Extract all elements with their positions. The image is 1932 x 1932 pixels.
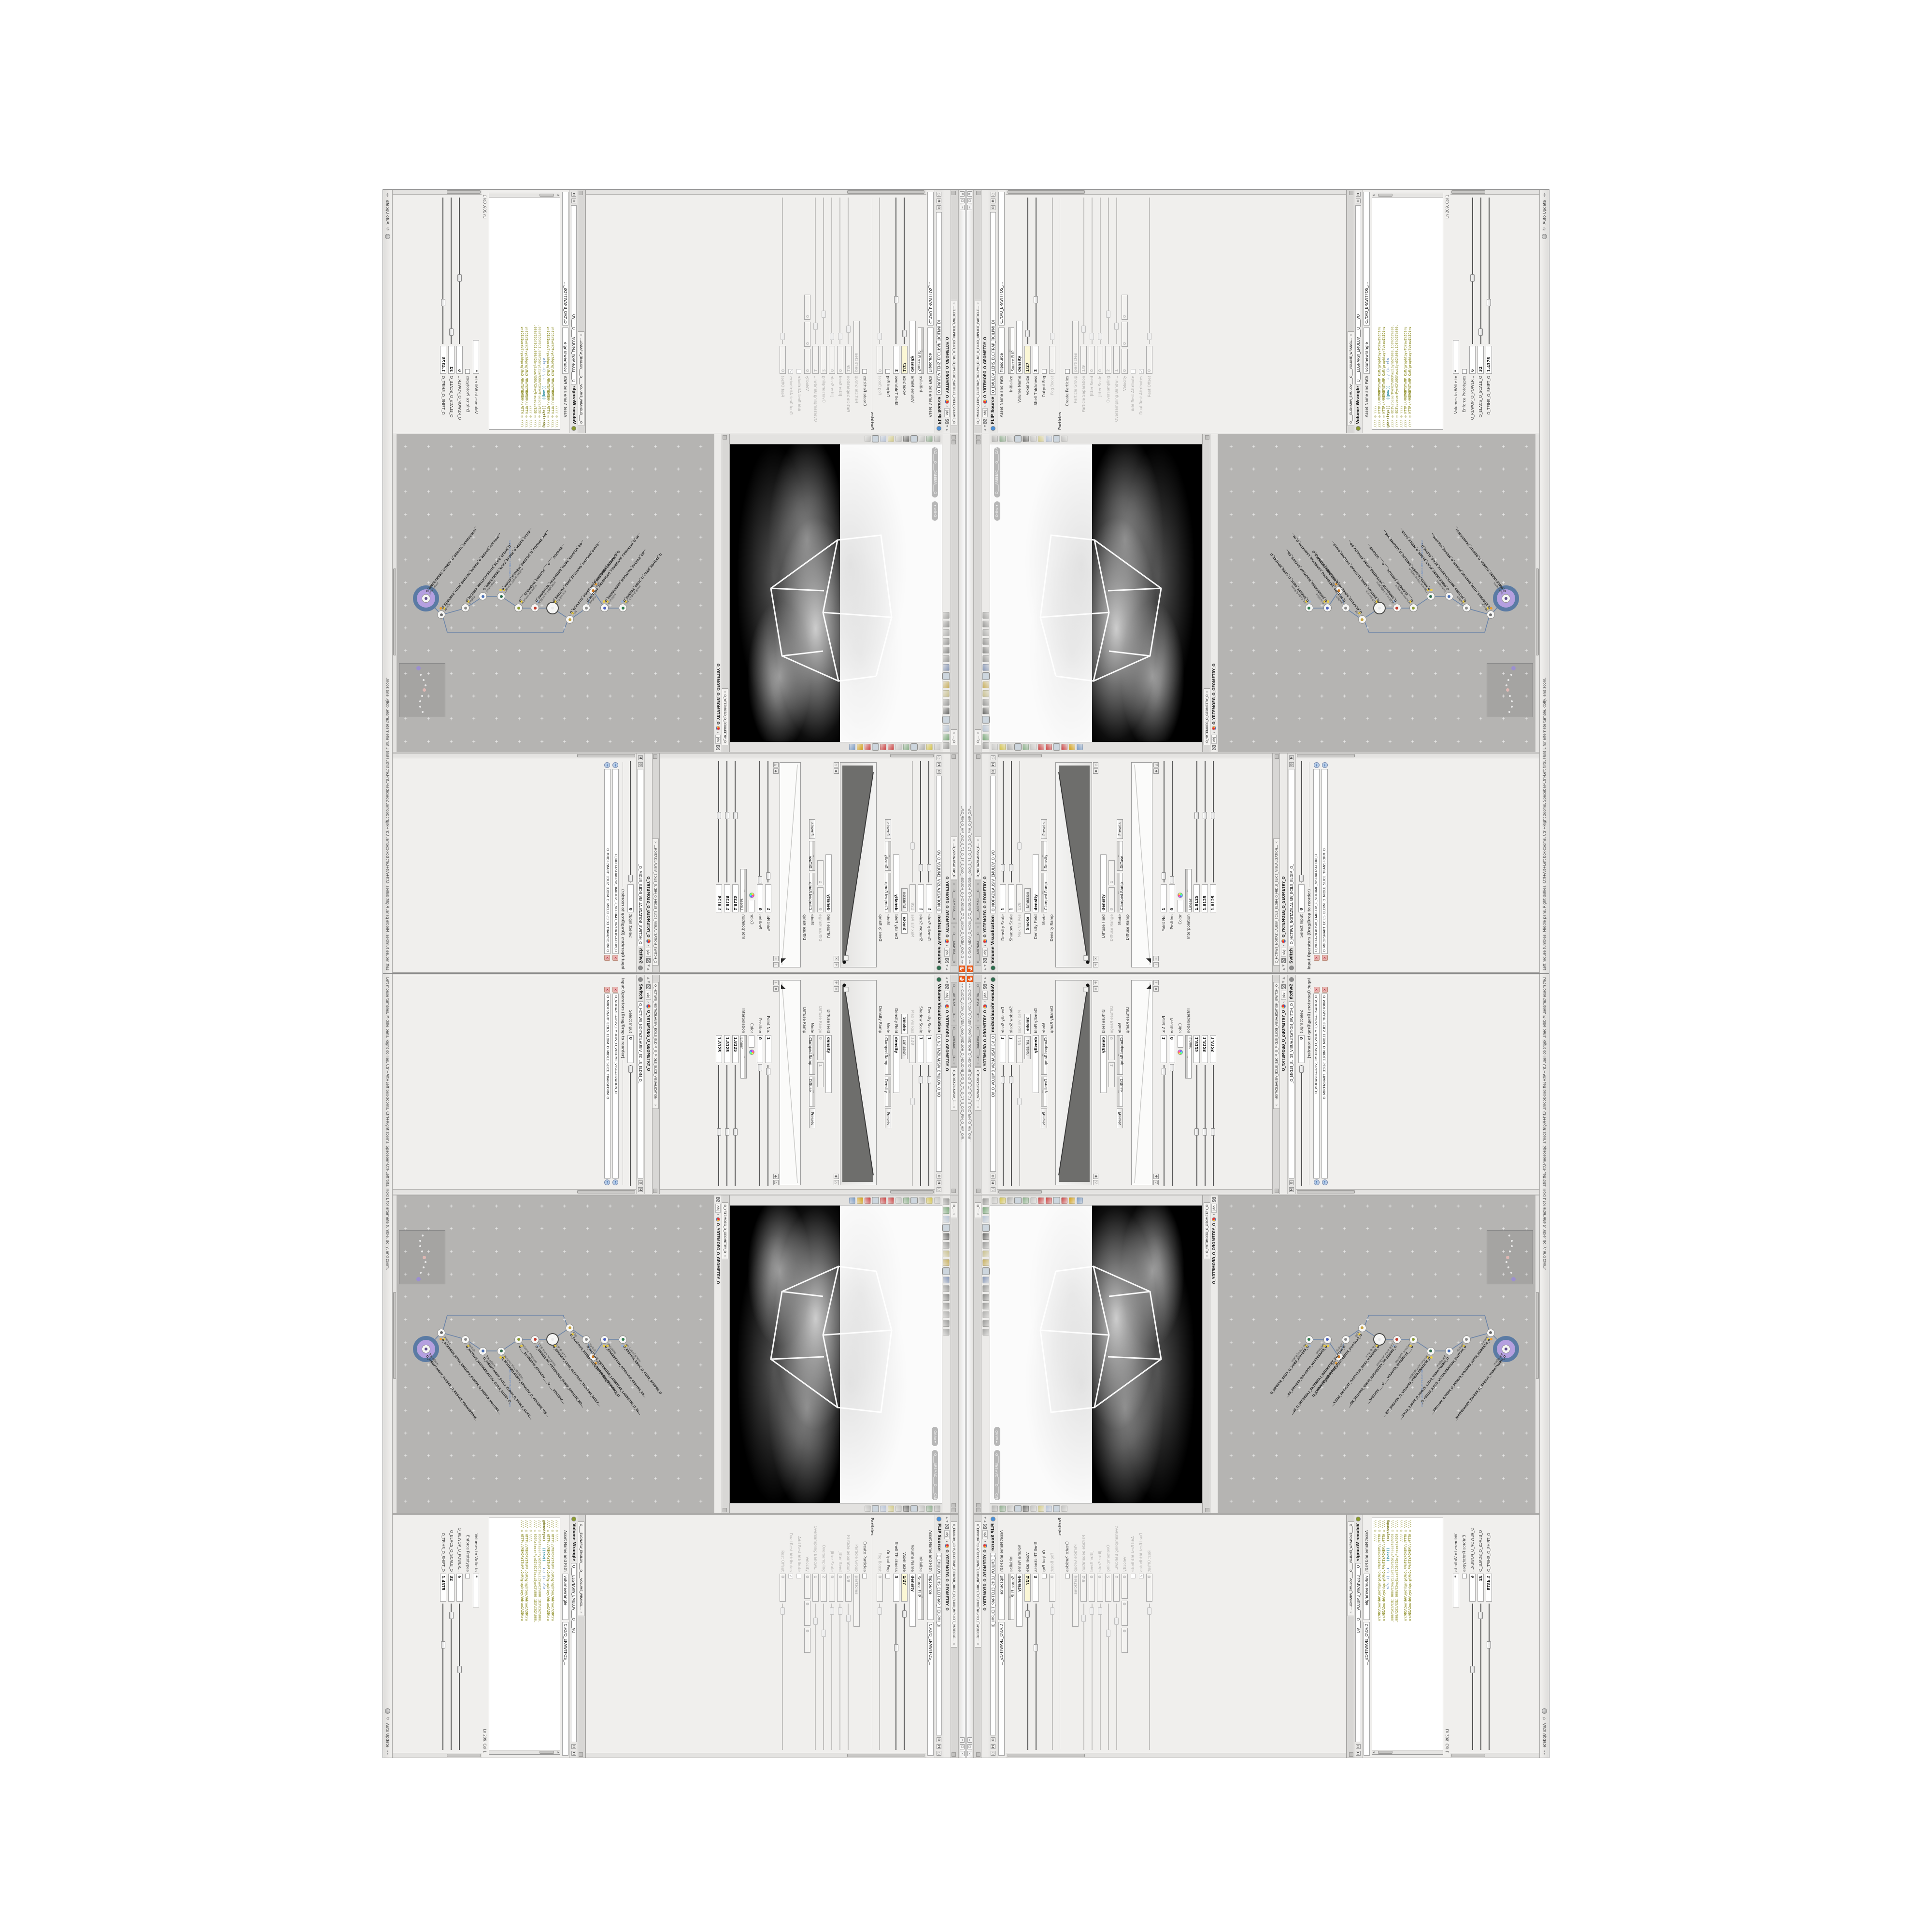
asset-name-field[interactable]: volumewrangle (1364, 1574, 1370, 1620)
value-field[interactable]: 1.4375 (1486, 1574, 1492, 1602)
node-transform[interactable] (1502, 1345, 1510, 1353)
dropdown-channel[interactable]: Diffuse (1117, 1077, 1123, 1107)
slider-handle[interactable] (1025, 330, 1030, 337)
slider-handle[interactable] (628, 1065, 633, 1073)
color-swatch[interactable] (749, 900, 755, 912)
slider-handle[interactable] (717, 1128, 721, 1136)
titlebar-scroll-arrows[interactable]: ◀ ▶ (968, 960, 971, 964)
node-name-field[interactable]: O_EMULOV_LEHS_ELCITRAP_TICILPMI_DI (936, 212, 942, 395)
ramp-marker-icon[interactable]: △ (834, 762, 839, 767)
toolbar-icon-4[interactable] (1023, 436, 1029, 442)
pane-tab[interactable]: O____ELGNARW_EMULOV____O____VOLUME_WRANG… (578, 331, 584, 426)
value-field[interactable]: 1 (1113, 1574, 1120, 1602)
pane-menu-icon[interactable] (1205, 435, 1209, 440)
value-field[interactable]: 1.8125 (716, 1035, 722, 1063)
ramp-marker-icon[interactable]: ◆ (834, 768, 839, 774)
breadcrumb-obj[interactable]: obj (1211, 1204, 1217, 1213)
slider-handle[interactable] (878, 1607, 882, 1615)
pane-tab[interactable]: O____ARTNAM____O...✕ (975, 923, 981, 966)
search-icon[interactable]: ◌ (991, 755, 995, 760)
toolbar-icon-13[interactable] (943, 1311, 950, 1318)
slider[interactable] (838, 1604, 843, 1750)
reorder-input-icon[interactable]: ← (1322, 1179, 1328, 1185)
gear-icon[interactable]: ⚙ (638, 1180, 643, 1185)
asset-path-field[interactable]: C:/O/O_ERAWTFOS_... (998, 192, 1005, 326)
slider-handle[interactable] (1090, 333, 1094, 340)
toolbar-icon-5[interactable] (982, 699, 989, 706)
value-field[interactable]: 0 (1169, 1035, 1175, 1063)
titlebar-scroll-arrows[interactable]: ◀ ▶ (961, 983, 964, 988)
reorder-input-icon[interactable]: ← (613, 762, 619, 768)
gear-icon[interactable]: ⚙ (991, 1174, 995, 1179)
slider[interactable] (757, 1065, 763, 1186)
value-field[interactable]: 0 (837, 346, 843, 374)
viewport-tab[interactable]: O_...✕ (975, 729, 981, 745)
value-field[interactable]: 1.8125 (1202, 884, 1208, 912)
checkbox-checked[interactable]: ✔ (1139, 369, 1144, 374)
slider-handle[interactable] (1098, 1607, 1102, 1615)
nav-up-icon[interactable]: ▲ (983, 977, 987, 980)
toolbar-icon-15[interactable] (943, 1329, 950, 1335)
slider[interactable] (1478, 1604, 1483, 1750)
node-name-field[interactable]: O____ELGNARW_EMULOV____O____VO (571, 1563, 577, 1742)
nav-up-icon[interactable]: ▲ (945, 1517, 949, 1519)
pane-menu-icon[interactable] (1275, 1189, 1279, 1193)
value-field[interactable]: 3 (893, 346, 899, 374)
toolbar-icon-0[interactable] (992, 744, 998, 751)
search-icon[interactable]: ◌ (937, 1187, 941, 1192)
value-field[interactable]: 0 (1122, 349, 1128, 374)
node-switch[interactable] (462, 1335, 470, 1344)
slider[interactable] (1299, 761, 1304, 882)
toolbar-icon-15[interactable] (982, 1329, 989, 1335)
toolbar-icon-7[interactable] (880, 1197, 886, 1204)
node-an-cubesphere[interactable] (619, 1335, 627, 1344)
viewport-render[interactable]: Ortho ▾ O____AREMAC____O____CAMERA____O … (730, 1206, 942, 1503)
viewport-tab[interactable]: O_...✕ (975, 1202, 981, 1218)
code-scrollbar[interactable]: ▲ (489, 1750, 560, 1754)
color-wheel-icon[interactable] (749, 893, 754, 898)
asset-path-field[interactable]: C:/O/O_ERAWTFOS_... (927, 1622, 934, 1756)
subtab-smoke[interactable]: Smoke (901, 913, 908, 934)
value-field[interactable]: 1/9 (1080, 1574, 1087, 1602)
update-mode-arrows[interactable]: ◀ ▶ (1543, 193, 1546, 197)
slider-handle[interactable] (1001, 1076, 1005, 1083)
value-field[interactable]: 1 (812, 346, 819, 374)
node-name-field[interactable]: O_EMULOV_LEHS_ELCITRAP_TICILPMI_DI (990, 212, 996, 395)
update-mode-arrows[interactable]: ◀ ▶ (386, 193, 389, 197)
pane-tab[interactable]: O____AREMAC____O...✕ (951, 1025, 957, 1067)
toolbar-icon-6[interactable] (888, 1197, 894, 1204)
breadcrumb-path[interactable]: O_YRTEMOEG_O_GEOMETRY_O (1212, 1223, 1216, 1284)
vex-code-editor[interactable]: //// ◎ \\\\//// ◎ HTTP://MEMORYST◎MP.C◎M… (489, 193, 560, 430)
value-field[interactable]: density (1100, 854, 1107, 912)
breadcrumb-path[interactable]: O_YRTEMOEG_O_GEOMETRY_O (983, 1549, 987, 1611)
subtab-smoke[interactable]: Smoke (901, 1014, 908, 1034)
slider-handle[interactable] (1170, 876, 1174, 883)
slider[interactable] (1478, 198, 1483, 344)
dropdown-channel[interactable]: Density (885, 841, 891, 871)
presets-button[interactable]: Presets (885, 819, 891, 839)
breadcrumb-obj[interactable]: obj (982, 948, 988, 957)
slider[interactable] (1114, 1604, 1119, 1750)
ramp-add-icon[interactable]: ＋ (1153, 980, 1159, 985)
toolbar-icon-11[interactable] (1077, 1197, 1083, 1204)
breadcrumb-obj[interactable]: obj (715, 735, 721, 744)
slider[interactable] (1486, 198, 1492, 344)
ramp-marker-icon[interactable]: △ (1093, 1180, 1098, 1185)
close-button[interactable]: ✕ (960, 191, 965, 197)
pane-scrollbar[interactable] (1450, 190, 1539, 195)
pane-scrollbar[interactable] (997, 1189, 1272, 1194)
value-field[interactable]: 1.8125 (732, 1035, 739, 1063)
dropdown[interactable]: Source FLIP (1008, 327, 1014, 374)
node-transform[interactable] (479, 1347, 487, 1355)
breadcrumb-path[interactable]: O_YRTEMOEG_O_GEOMETRY_O (945, 876, 949, 938)
remove-input-icon[interactable]: ✕ (613, 955, 619, 961)
slider-handle[interactable] (1114, 1618, 1119, 1625)
breadcrumb-obj[interactable]: obj (944, 948, 950, 957)
pane-pin-icon[interactable] (976, 435, 980, 440)
network-graph[interactable]: 80.NO3.PETS.TRPOLS.0_55U +++++++++++++++… (397, 434, 714, 752)
slider-handle[interactable] (1211, 812, 1215, 819)
node-name-field[interactable]: O____ELGNARW_EMULOV____O____VO (1355, 1563, 1361, 1742)
toolbar-icon-0[interactable] (992, 1197, 998, 1204)
network-tab[interactable]: O_YRTEMOEG_O_GEOMETRY_O✕ (722, 688, 728, 745)
checkbox-unchecked[interactable] (1462, 1574, 1467, 1578)
slider-handle[interactable] (1034, 296, 1038, 303)
slider-handle[interactable] (1299, 875, 1304, 882)
toolbar-icon-6[interactable] (943, 1250, 950, 1257)
breadcrumb-path[interactable]: O_YRTEMOEG_O_GEOMETRY_O (646, 1010, 651, 1071)
slider[interactable] (821, 198, 826, 344)
value-field[interactable]: 1.8125 (1193, 1035, 1200, 1063)
value-field[interactable]: 6 (456, 1574, 463, 1602)
slider-handle[interactable] (830, 333, 834, 340)
node-clip[interactable] (1358, 616, 1366, 624)
pane-scrollbar[interactable] (1450, 1753, 1539, 1758)
slider[interactable] (780, 1604, 785, 1750)
node-polywire[interactable] (601, 1335, 609, 1344)
breadcrumb-obj[interactable]: obj (944, 1530, 950, 1539)
gear-icon[interactable]: ⚙ (571, 199, 576, 203)
value-field[interactable]: 6 (456, 346, 463, 374)
slider[interactable] (1161, 761, 1166, 882)
dropdown-channel[interactable]: Density (1041, 841, 1047, 871)
nav-up-icon[interactable]: ▲ (945, 968, 949, 970)
help-icon[interactable]: H (571, 1751, 576, 1756)
dropdown-channel[interactable]: Diffuse (809, 841, 815, 871)
asset-path-field[interactable]: C:/O/O_ERAWTFOS_... (998, 1622, 1005, 1756)
toolbar-icon-2[interactable] (943, 1216, 950, 1222)
remove-input-icon[interactable]: ✕ (1314, 955, 1320, 961)
dropdown[interactable]: Linear (1185, 1035, 1192, 1079)
pane-split-icon[interactable] (952, 440, 956, 444)
slider-handle[interactable] (1162, 872, 1166, 880)
node-merge[interactable] (1487, 1329, 1495, 1337)
toolbar-icon-2[interactable] (982, 1216, 989, 1222)
dropdown-mode[interactable]: Clamped Ramp (885, 1035, 891, 1075)
pane-menu-icon[interactable] (653, 1189, 657, 1193)
reorder-input-icon[interactable]: ← (613, 1179, 619, 1185)
ramp-delete-icon[interactable]: ✕ (1153, 986, 1159, 992)
pane-pin-icon[interactable] (952, 435, 956, 440)
toolbar-icon-9[interactable] (1061, 436, 1067, 442)
value-field[interactable]: 0 (877, 1574, 883, 1602)
slider-handle[interactable] (758, 1064, 762, 1071)
value-field[interactable]: 0 (1122, 322, 1128, 347)
toolbar-icon-6[interactable] (1038, 744, 1044, 751)
pane-tab[interactable]: O_EMULOV_LEHS_ELCITRAP_TICILPMI_DIULF_O_… (951, 300, 957, 426)
remove-input-icon[interactable]: ✕ (1314, 987, 1320, 993)
slider-handle[interactable] (1025, 1610, 1030, 1618)
slider[interactable] (1210, 1065, 1216, 1186)
slider[interactable] (780, 198, 785, 344)
nav-down-icon[interactable]: ▼ (945, 965, 949, 967)
pane-menu-icon[interactable] (579, 1752, 583, 1757)
slider[interactable] (1114, 198, 1119, 344)
toolbar-icon-11[interactable] (943, 1294, 950, 1301)
dropdown[interactable]: Source FLIP (918, 1574, 924, 1620)
node-volume-wrangle[interactable] (515, 1335, 523, 1344)
pane-scrollbar[interactable] (586, 190, 926, 195)
value-field[interactable]: 1.8125 (732, 884, 739, 912)
slider-handle[interactable] (1478, 328, 1483, 336)
titlebar-scroll-arrows[interactable]: ◀ ▶ (961, 960, 964, 964)
ramp-delete-icon[interactable]: ✕ (1153, 956, 1159, 961)
dropdown-channel[interactable]: Diffuse (809, 1077, 815, 1107)
toolbar-icon-1[interactable] (943, 1207, 950, 1214)
value-field[interactable]: 3 (893, 1574, 899, 1602)
toolbar-icon-11[interactable] (849, 1197, 855, 1204)
checkbox-unchecked[interactable] (797, 1574, 802, 1578)
slider[interactable] (733, 761, 738, 882)
restore-button[interactable]: ▢ (967, 198, 972, 203)
pane-scrollbar[interactable] (660, 1189, 935, 1194)
value-field[interactable]: 0 (804, 1574, 810, 1599)
toolbar-icon-12[interactable] (943, 638, 950, 645)
toolbar-icon-10[interactable] (1069, 1197, 1075, 1204)
value-field[interactable]: 1 (1008, 884, 1014, 912)
auto-update-selector[interactable]: Auto Update (385, 200, 390, 224)
value-field[interactable]: particles (1072, 321, 1079, 374)
value-field[interactable]: 1/27 (901, 1574, 908, 1602)
camera-pill[interactable]: O____AREMAC____O____CAMERA____O ▾ (994, 1450, 1000, 1500)
toolbar-icon-12[interactable] (982, 638, 989, 645)
toolbar-icon-9[interactable] (943, 1277, 950, 1283)
slider-handle[interactable] (902, 330, 907, 337)
checkbox-unchecked[interactable] (1462, 369, 1467, 374)
vex-code-editor[interactable]: //// ◎ \\\\//// ◎ HTTP://MEMORYST◎MP.C◎M… (1372, 1518, 1443, 1755)
asset-path-field[interactable]: C:/O/O_ERAWTFOS_... (1364, 192, 1370, 326)
value-field[interactable]: 6 (1469, 1574, 1476, 1602)
density-ramp-widget[interactable] (840, 980, 877, 1185)
pane-tab[interactable]: O_HCTIWS_NOITAZILAUSIV_ECILS_ELDIM_O_MID… (653, 838, 659, 966)
slider[interactable] (440, 198, 446, 344)
slider-handle[interactable] (838, 333, 842, 340)
window-titlebar[interactable]: ◀ ▶ C:/O/O_AIDIV_O_VIDIA_O/O_INIDUOH_O_H… (966, 190, 974, 973)
value-field[interactable]: 1.8125 (724, 1035, 730, 1063)
value-field[interactable]: 1 (1000, 884, 1006, 912)
dropdown-mode[interactable]: Clamped Ramp (1041, 873, 1047, 912)
slider[interactable] (1210, 761, 1216, 882)
slider-handle[interactable] (733, 812, 738, 819)
toolbar-icon-0[interactable] (943, 742, 950, 749)
slider[interactable] (766, 761, 771, 882)
refresh-icon[interactable]: ↻ (1542, 227, 1547, 231)
toolbar-icon-11[interactable] (849, 744, 855, 751)
node-merge[interactable] (1487, 611, 1495, 619)
value-field[interactable]: density (825, 1035, 832, 1093)
slider[interactable] (902, 1604, 907, 1750)
slider[interactable] (757, 761, 763, 882)
network-tab[interactable]: O_YRTEMOEG_O_GEOMETRY_O✕ (722, 1202, 728, 1259)
value-field[interactable]: 1 (1113, 346, 1120, 374)
value-field[interactable]: density (893, 854, 899, 912)
toolbar-icon-7[interactable] (1046, 744, 1052, 751)
camera-pill[interactable]: O____AREMAC____O____CAMERA____O ▾ (932, 1450, 938, 1500)
slider-handle[interactable] (441, 299, 445, 306)
tab-close-icon[interactable]: ✕ (977, 1020, 980, 1022)
node-name-field[interactable]: O____ELGNARW_EMULOV____O____VO (571, 205, 577, 384)
asset-name-field[interactable]: flipsource (998, 327, 1005, 374)
help-icon[interactable]: H (991, 762, 995, 767)
toolbar-icon-14[interactable] (982, 1320, 989, 1327)
search-icon[interactable]: ◌ (937, 1751, 941, 1756)
toolbar-icon-1[interactable] (926, 1506, 933, 1512)
dropdown[interactable]: Linear (740, 869, 747, 912)
slider-handle[interactable] (910, 1098, 915, 1105)
slider-handle[interactable] (758, 876, 762, 883)
network-hscrollbar[interactable] (1535, 434, 1539, 752)
value-field[interactable]: 128 (1016, 1035, 1023, 1063)
toolbar-icon-0[interactable] (992, 436, 998, 442)
view-mode-pill[interactable]: Ortho ▾ (994, 1427, 1000, 1446)
gear-icon[interactable]: ⚙ (937, 769, 941, 774)
toolbar-icon-12[interactable] (943, 1303, 950, 1309)
dropdown-mode[interactable]: Clamped Ramp (1041, 1035, 1047, 1075)
slider[interactable] (1486, 1604, 1492, 1750)
slider-handle[interactable] (1017, 842, 1022, 850)
slider-handle[interactable] (927, 864, 931, 871)
slider[interactable] (910, 761, 915, 882)
toolbar-icon-13[interactable] (982, 629, 989, 636)
slider-handle[interactable] (1211, 1128, 1215, 1136)
slider[interactable] (829, 1604, 835, 1750)
dropdown-mode[interactable]: Clamped Ramp (1117, 873, 1123, 912)
node-volume-visualization[interactable] (1427, 593, 1435, 601)
toolbar-icon-2[interactable] (919, 436, 925, 442)
value-field[interactable]: 2 (821, 1574, 827, 1602)
toolbar-icon-5[interactable] (1030, 436, 1037, 442)
nav-down-icon[interactable]: ▼ (1282, 981, 1285, 983)
toolbar-icon-10[interactable] (982, 655, 989, 662)
toolbar-icon-9[interactable] (982, 664, 989, 671)
slider[interactable] (766, 1065, 771, 1186)
slider[interactable] (1033, 1604, 1038, 1750)
slider-handle[interactable] (1098, 333, 1102, 340)
checkbox-unchecked[interactable] (863, 1574, 867, 1578)
restore-button[interactable]: ▢ (960, 198, 965, 203)
breadcrumb-path[interactable]: O_YRTEMOEG_O_GEOMETRY_O (945, 1549, 949, 1611)
value-field[interactable]: density (1016, 1574, 1023, 1627)
diffuse-ramp-widget[interactable] (780, 762, 801, 967)
reorder-input-icon[interactable]: ← (605, 1179, 611, 1185)
presets-button[interactable]: Presets (885, 1108, 891, 1128)
input-operator-field[interactable]: O_MROFSNART_ECILS_ELDIM_O_MIDLE_SLICE_TR… (604, 994, 611, 1179)
slider[interactable] (1081, 1604, 1086, 1750)
network-minimap[interactable] (1487, 1230, 1533, 1284)
slider[interactable] (926, 1065, 932, 1186)
asset-name-field[interactable]: volumewrangle (1364, 327, 1370, 374)
pane-menu-icon[interactable] (952, 1189, 956, 1193)
toolbar-icon-9[interactable] (1061, 1506, 1067, 1512)
remove-input-icon[interactable]: ✕ (605, 955, 611, 961)
slider[interactable] (1025, 198, 1030, 344)
slider[interactable] (877, 1604, 882, 1750)
help-icon[interactable]: H (937, 1744, 941, 1749)
value-field[interactable]: 0 (1122, 295, 1128, 320)
diffuse-ramp-widget[interactable] (780, 980, 801, 1185)
breadcrumb-obj[interactable]: obj (982, 1530, 988, 1539)
ramp-marker-icon[interactable]: ◆ (1153, 768, 1159, 774)
gear-icon[interactable]: ⚙ (638, 762, 643, 767)
pane-menu-icon[interactable] (976, 1189, 980, 1193)
slider[interactable] (457, 198, 462, 344)
value-field[interactable]: 128 (909, 1035, 916, 1063)
slider-handle[interactable] (1001, 864, 1005, 871)
slider[interactable] (1050, 198, 1055, 344)
view-mode-pill[interactable]: Ortho ▾ (932, 501, 938, 521)
toolbar-icon-8[interactable] (872, 436, 879, 442)
help-icon[interactable]: H (571, 192, 576, 197)
gear-icon[interactable]: ⚙ (1356, 1744, 1361, 1749)
refresh-icon[interactable]: ↻ (1542, 1717, 1547, 1720)
dropdown-channel[interactable]: Density (885, 1077, 891, 1107)
nav-up-icon[interactable]: ▲ (647, 977, 650, 980)
pane-tab[interactable]: O_HCTIWS_NOITAZILAUSIV_ECILS_ELDIM_O_MID… (653, 982, 659, 1109)
value-field[interactable]: 1 (1000, 1035, 1006, 1063)
gear-icon[interactable]: ⚙ (991, 205, 995, 210)
slider-handle[interactable] (1170, 1064, 1174, 1071)
breadcrumb-obj[interactable]: obj (982, 991, 988, 1000)
help-icon[interactable]: H (937, 762, 941, 767)
node-switch[interactable] (1342, 604, 1350, 612)
subtab-smoke[interactable]: Smoke (1024, 913, 1031, 934)
toolbar-icon-15[interactable] (943, 612, 950, 619)
pane-tab[interactable]: O____ELGNARW_EMULOV____O____VOLUME_WRANG… (1348, 1521, 1354, 1616)
toolbar-icon-9[interactable] (1061, 744, 1067, 751)
breadcrumb-path[interactable]: O_YRTEMOEG_O_GEOMETRY_O (983, 1010, 987, 1071)
node-name-field[interactable]: O_NOITAZILAUSIV_EMULOV_O_VO (936, 1034, 942, 1172)
nav-down-icon[interactable]: ▼ (1282, 965, 1285, 967)
search-icon[interactable]: ◌ (991, 1187, 995, 1192)
breadcrumb-path[interactable]: O_YRTEMOEG_O_GEOMETRY_O (1281, 876, 1286, 938)
node-name-field[interactable]: O_NOITAZILAUSIV_EMULOV_O_VO (990, 1034, 996, 1172)
ramp-add-icon[interactable]: ＋ (773, 980, 779, 985)
toolbar-icon-1[interactable] (982, 734, 989, 740)
slider[interactable] (829, 198, 835, 344)
tab-close-icon[interactable]: ✕ (977, 883, 980, 885)
toolbar-icon-4[interactable] (943, 708, 950, 714)
nav-up-icon[interactable]: ▲ (647, 968, 650, 970)
dropdown-mode[interactable]: Clamped Ramp (885, 873, 891, 912)
breadcrumb-path[interactable]: O_YRTEMOEG_O_GEOMETRY_O (945, 337, 949, 398)
value-field[interactable]: 128 (909, 884, 916, 912)
minimize-button[interactable]: − (960, 205, 965, 210)
network-tab[interactable]: O_YRTEMOEG_O_GEOMETRY_O✕ (1204, 688, 1210, 745)
breadcrumb-path[interactable]: O_YRTEMOEG_O_GEOMETRY_O (983, 337, 987, 398)
